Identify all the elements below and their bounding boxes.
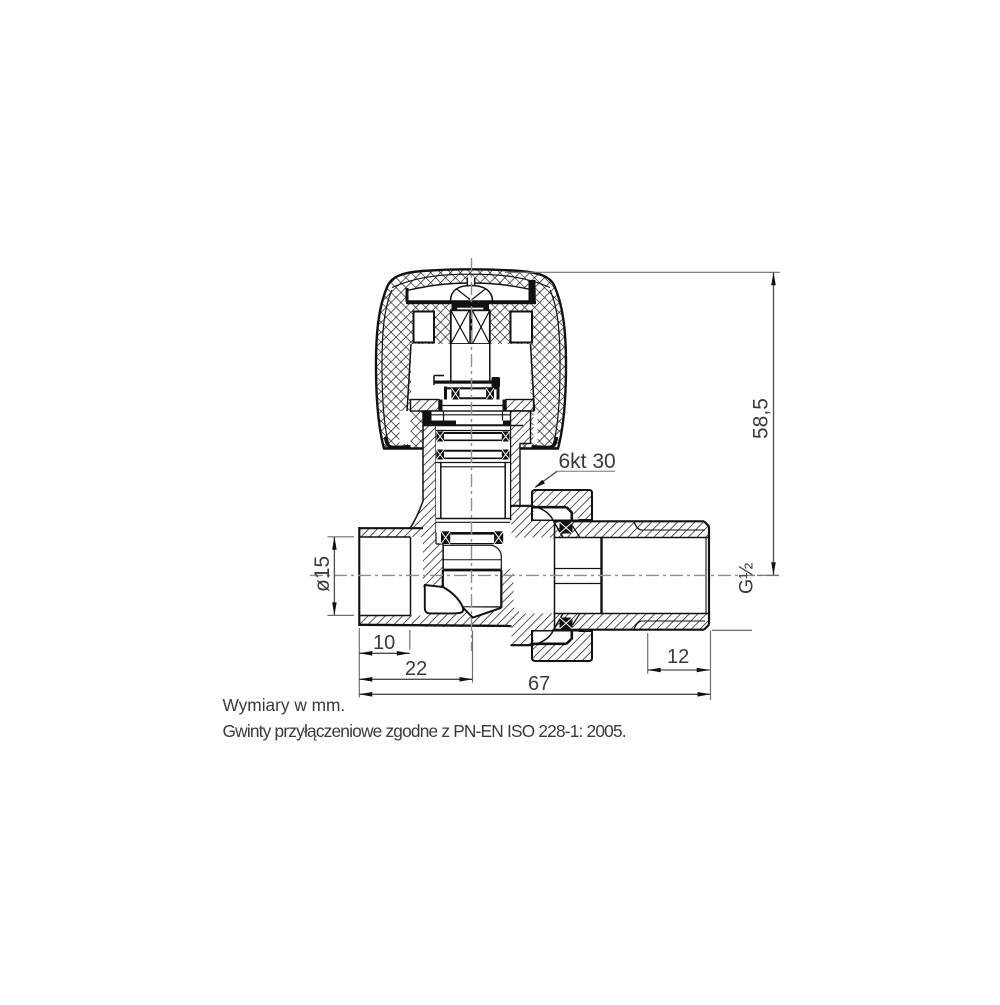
svg-text:22: 22 (405, 658, 427, 680)
svg-text:58,5: 58,5 (750, 398, 773, 439)
svg-text:12: 12 (667, 646, 689, 668)
svg-text:Wymiary w mm.: Wymiary w mm. (223, 695, 346, 715)
svg-text:ø15: ø15 (311, 556, 334, 592)
svg-text:10: 10 (373, 632, 395, 654)
svg-text:Gwinty przyłączeniowe zgodne z: Gwinty przyłączeniowe zgodne z PN-EN ISO… (223, 721, 626, 741)
svg-text:G½: G½ (736, 563, 758, 594)
svg-text:67: 67 (528, 673, 550, 695)
svg-text:6kt 30: 6kt 30 (559, 450, 616, 473)
